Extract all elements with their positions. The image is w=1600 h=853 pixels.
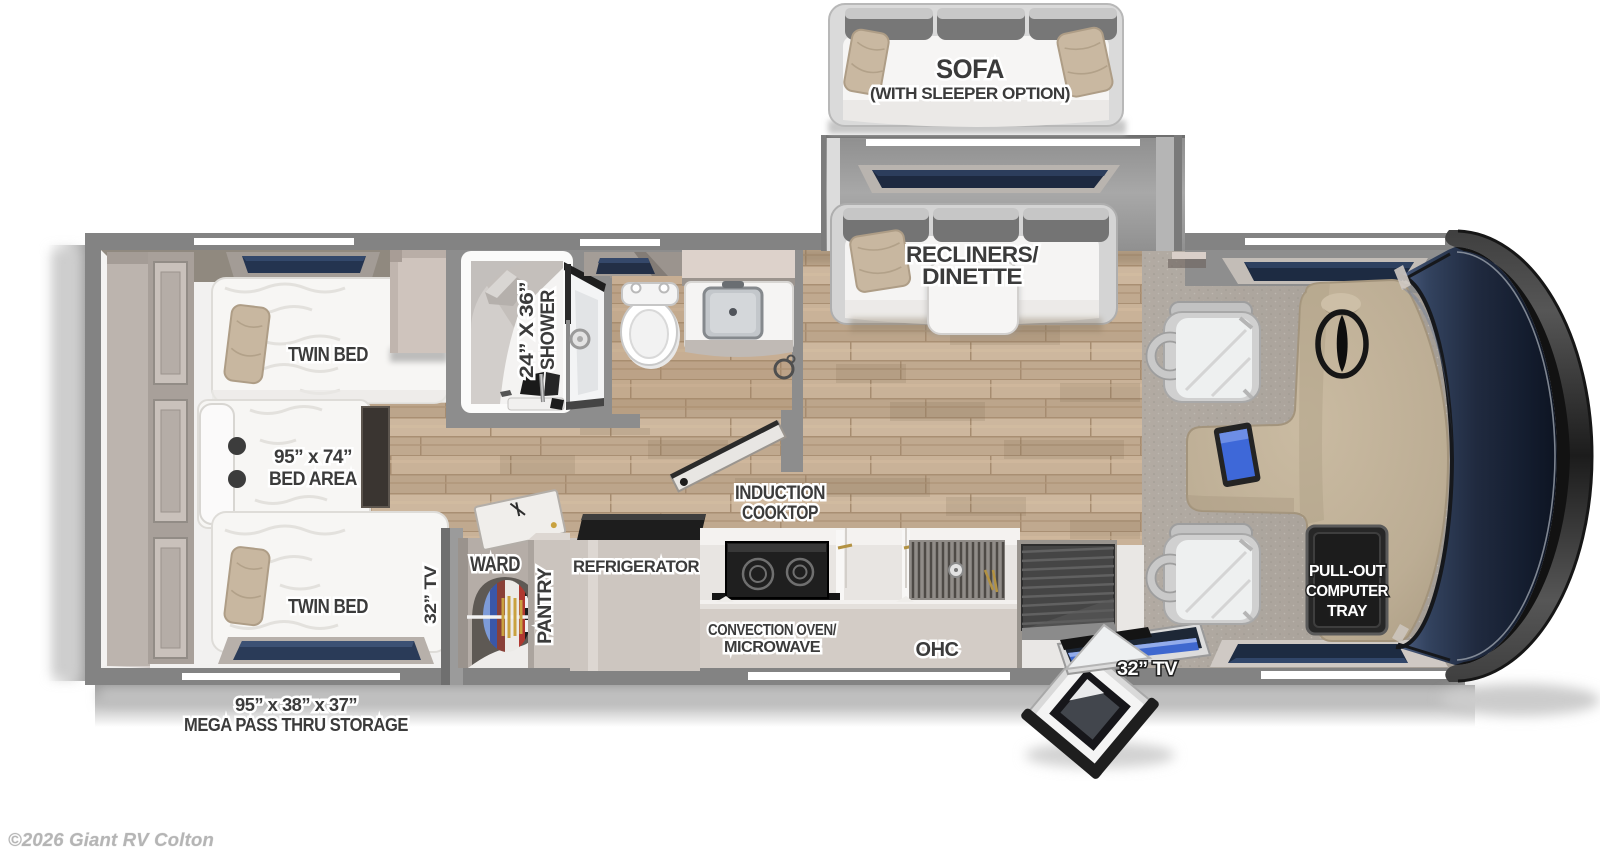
svg-text:PULL-OUT: PULL-OUT bbox=[1309, 563, 1386, 580]
svg-text:(WITH SLEEPER OPTION): (WITH SLEEPER OPTION) bbox=[870, 84, 1070, 103]
svg-text:©2026 Giant RV Colton: ©2026 Giant RV Colton bbox=[8, 829, 214, 850]
svg-text:TWIN BED: TWIN BED bbox=[288, 596, 368, 618]
svg-text:MICROWAVE: MICROWAVE bbox=[724, 639, 821, 656]
svg-text:SHOWER: SHOWER bbox=[538, 289, 559, 370]
svg-text:TWIN BED: TWIN BED bbox=[288, 344, 368, 366]
svg-text:TRAY: TRAY bbox=[1327, 603, 1368, 620]
svg-text:24” X 36”: 24” X 36” bbox=[517, 282, 538, 378]
svg-text:CONVECTION OVEN/: CONVECTION OVEN/ bbox=[708, 622, 837, 639]
svg-text:95” x 74”: 95” x 74” bbox=[274, 447, 352, 468]
svg-text:32” TV: 32” TV bbox=[1117, 659, 1178, 680]
svg-text:32” TV: 32” TV bbox=[421, 565, 440, 624]
svg-text:SOFA: SOFA bbox=[936, 54, 1004, 84]
svg-text:95” x 38” x 37”: 95” x 38” x 37” bbox=[235, 695, 357, 715]
svg-text:COOKTOP: COOKTOP bbox=[742, 503, 819, 524]
svg-text:BED AREA: BED AREA bbox=[269, 469, 358, 490]
svg-text:OHC: OHC bbox=[916, 639, 959, 661]
svg-text:REFRIGERATOR: REFRIGERATOR bbox=[573, 557, 699, 576]
svg-text:MEGA PASS THRU STORAGE: MEGA PASS THRU STORAGE bbox=[184, 715, 408, 735]
svg-text:WARD: WARD bbox=[470, 553, 520, 576]
svg-text:DINETTE: DINETTE bbox=[922, 264, 1022, 289]
svg-text:COMPUTER: COMPUTER bbox=[1306, 583, 1389, 600]
svg-text:INDUCTION: INDUCTION bbox=[735, 483, 825, 504]
svg-text:PANTRY: PANTRY bbox=[535, 567, 556, 644]
